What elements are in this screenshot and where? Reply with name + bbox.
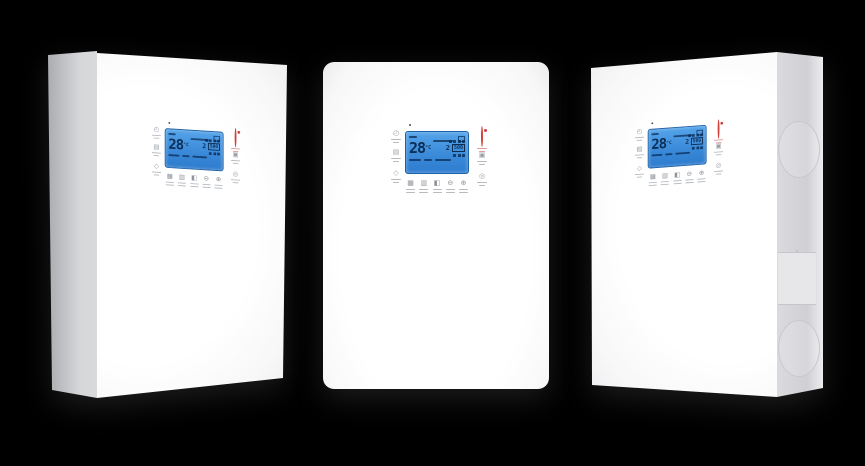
plus-icon: ⊕ [696, 169, 706, 177]
temperature-readout: 28°C [168, 137, 188, 154]
boxed-value: 500 [208, 143, 220, 151]
status-button[interactable]: ◎ [475, 172, 489, 186]
status-led [651, 122, 653, 124]
aux-value: 2 [446, 145, 450, 152]
minus-button[interactable]: ⊖ [684, 170, 694, 184]
mode-button[interactable]: ▥ [418, 179, 429, 193]
temperature-readout: 28°C [409, 140, 431, 157]
plus-icon: ⊕ [458, 179, 469, 187]
plate-screw-dot [796, 250, 798, 252]
power-icon [718, 119, 720, 138]
settings-button[interactable]: ▣ [229, 151, 242, 165]
calendar-button[interactable]: ▤ [633, 145, 646, 159]
calendar-icon: ▤ [633, 145, 646, 153]
heater-unit-left: ◴ ▤ ◇ 28°C 2 [46, 48, 290, 404]
button-row: ▦ ▥ ◧ ⊖ ⊕ [648, 169, 707, 186]
aux-value: 2 [202, 143, 206, 150]
shield-icon: ◇ [150, 162, 163, 170]
mode-icon: ▥ [177, 173, 187, 181]
calendar-button[interactable]: ▤ [389, 148, 403, 162]
menu-icon: ▦ [405, 179, 416, 187]
knockout-circle-bottom [778, 320, 820, 377]
minus-icon: ⊖ [201, 175, 211, 183]
calendar-icon: ▤ [389, 148, 403, 156]
display-icon: ◧ [672, 171, 682, 179]
menu-button[interactable]: ▦ [648, 173, 658, 187]
heater-unit-right: ◴ ▤ ◇ 28°C 2 [588, 48, 826, 401]
timer-button[interactable]: ◴ [389, 129, 403, 143]
lcd-display: 28°C 2 500 [648, 125, 707, 169]
mode-icon: ▥ [660, 172, 670, 180]
timer-button[interactable]: ◴ [633, 127, 646, 141]
control-panel: ◴ ▤ ◇ 28°C 2 [150, 118, 242, 197]
timer-icon: ◴ [389, 129, 403, 137]
timer-icon: ◴ [633, 127, 646, 135]
button-row: ▦ ▥ ◧ ⊖ ⊕ [165, 172, 224, 189]
status-led [168, 122, 170, 124]
power-button[interactable] [475, 127, 489, 152]
aux-value: 2 [685, 139, 689, 146]
shield-icon: ◇ [389, 169, 403, 177]
mode-icon: ▥ [418, 179, 429, 187]
display-icon: ◧ [432, 179, 443, 187]
shield-icon: ◇ [633, 164, 646, 172]
lcd-status-icons [434, 140, 465, 143]
status-icon: ◎ [475, 172, 489, 180]
side-access-plate [778, 252, 816, 305]
timer-icon: ◴ [150, 125, 163, 133]
boxed-value: 500 [691, 137, 703, 145]
status-icon: ◎ [712, 161, 725, 169]
mode-button[interactable]: ▥ [660, 172, 670, 186]
status-button[interactable]: ◎ [229, 170, 242, 184]
control-panel: ◴ ▤ ◇ 28°C 2 [633, 114, 725, 194]
plus-button[interactable]: ⊕ [458, 179, 469, 193]
minus-button[interactable]: ⊖ [445, 179, 456, 193]
plus-icon: ⊕ [213, 175, 223, 183]
menu-button[interactable]: ▦ [405, 179, 416, 193]
menu-icon: ▦ [648, 173, 658, 181]
display-button[interactable]: ◧ [432, 179, 443, 193]
power-button[interactable] [712, 120, 725, 144]
display-icon: ◧ [189, 174, 199, 182]
timer-button[interactable]: ◴ [150, 125, 163, 139]
display-button[interactable]: ◧ [672, 171, 682, 185]
power-button[interactable] [229, 128, 242, 152]
menu-button[interactable]: ▦ [165, 172, 175, 186]
temperature-readout: 28°C [651, 136, 671, 153]
heater-unit-middle: ◴ ▤ ◇ 28°C 2 [323, 62, 549, 389]
product-photo: ◴ ▤ ◇ 28°C 2 [0, 0, 865, 466]
shield-button[interactable]: ◇ [389, 169, 403, 183]
minus-icon: ⊖ [684, 170, 694, 178]
power-icon [235, 128, 237, 147]
settings-icon: ▣ [229, 151, 242, 159]
lcd-display: 28°C 2 500 [165, 128, 224, 171]
plus-button[interactable]: ⊕ [213, 175, 223, 189]
lcd-display: 28°C 2 500 [405, 131, 469, 174]
control-panel: ◴ ▤ ◇ 28°C 2 [389, 121, 489, 201]
menu-icon: ▦ [165, 172, 175, 180]
status-led [409, 124, 411, 126]
settings-button[interactable]: ▣ [712, 142, 725, 156]
settings-icon: ▣ [475, 151, 489, 159]
calendar-button[interactable]: ▤ [150, 143, 163, 157]
mode-button[interactable]: ▥ [177, 173, 187, 187]
power-icon [481, 126, 483, 147]
display-button[interactable]: ◧ [189, 174, 199, 188]
plus-button[interactable]: ⊕ [696, 169, 706, 183]
settings-button[interactable]: ▣ [475, 151, 489, 165]
minus-icon: ⊖ [445, 179, 456, 187]
shield-button[interactable]: ◇ [633, 164, 646, 178]
status-button[interactable]: ◎ [712, 161, 725, 175]
knockout-circle-top [778, 121, 820, 178]
boxed-value: 500 [452, 144, 465, 152]
minus-button[interactable]: ⊖ [201, 175, 211, 189]
settings-icon: ▣ [712, 142, 725, 150]
shield-button[interactable]: ◇ [150, 162, 163, 176]
calendar-icon: ▤ [150, 143, 163, 151]
button-row: ▦ ▥ ◧ ⊖ ⊕ [405, 179, 469, 193]
status-icon: ◎ [229, 170, 242, 178]
